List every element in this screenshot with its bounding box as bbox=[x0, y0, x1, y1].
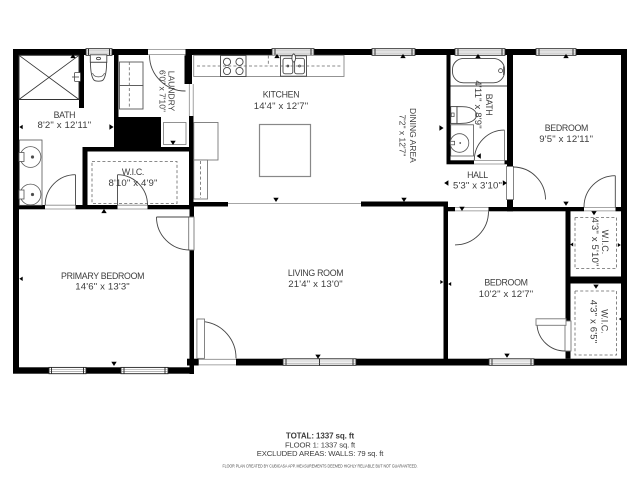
svg-text:6'0" x 7'10": 6'0" x 7'10" bbox=[157, 70, 167, 112]
svg-text:21'4" x 13'0": 21'4" x 13'0" bbox=[288, 279, 343, 290]
svg-text:9'5" x 12'11": 9'5" x 12'11" bbox=[539, 134, 593, 145]
svg-text:10'2" x 12'7": 10'2" x 12'7" bbox=[479, 289, 534, 300]
svg-text:8'2" x 12'11": 8'2" x 12'11" bbox=[37, 120, 91, 131]
svg-text:KITCHEN: KITCHEN bbox=[263, 90, 300, 100]
svg-text:W.I.C.: W.I.C. bbox=[600, 309, 610, 334]
svg-text:BATH: BATH bbox=[484, 94, 494, 116]
svg-text:14'4" x 12'7": 14'4" x 12'7" bbox=[254, 101, 309, 112]
svg-text:BATH: BATH bbox=[54, 110, 76, 120]
svg-text:7'2" x 12'7": 7'2" x 12'7" bbox=[398, 114, 408, 156]
svg-text:4'3" x 5'10": 4'3" x 5'10" bbox=[589, 217, 600, 266]
svg-text:LIVING ROOM: LIVING ROOM bbox=[288, 268, 343, 278]
svg-text:8'10" x 4'9": 8'10" x 4'9" bbox=[108, 178, 157, 189]
svg-text:4'11" x 8'9": 4'11" x 8'9" bbox=[472, 80, 483, 128]
svg-text:BEDROOM: BEDROOM bbox=[545, 123, 588, 133]
svg-text:EXCLUDED AREAS: WALLS: 79 sq.: EXCLUDED AREAS: WALLS: 79 sq. ft bbox=[257, 449, 385, 458]
svg-text:W.I.C.: W.I.C. bbox=[600, 230, 610, 255]
svg-text:5'3" x 3'10": 5'3" x 3'10" bbox=[453, 181, 502, 192]
svg-text:FLOOR PLAN CREATED BY CUBICASA: FLOOR PLAN CREATED BY CUBICASA APP. MEAS… bbox=[223, 464, 418, 469]
svg-text:TOTAL: 1337 sq. ft: TOTAL: 1337 sq. ft bbox=[286, 431, 355, 440]
svg-text:4'3" x 6'5": 4'3" x 6'5" bbox=[588, 300, 599, 344]
svg-text:BEDROOM: BEDROOM bbox=[484, 278, 527, 288]
svg-text:PRIMARY BEDROOM: PRIMARY BEDROOM bbox=[61, 271, 144, 281]
svg-text:14'6" x 13'3": 14'6" x 13'3" bbox=[75, 282, 130, 293]
svg-text:HALL: HALL bbox=[467, 170, 488, 180]
svg-text:W.I.C.: W.I.C. bbox=[122, 167, 144, 177]
svg-text:DINING AREA: DINING AREA bbox=[408, 108, 418, 163]
